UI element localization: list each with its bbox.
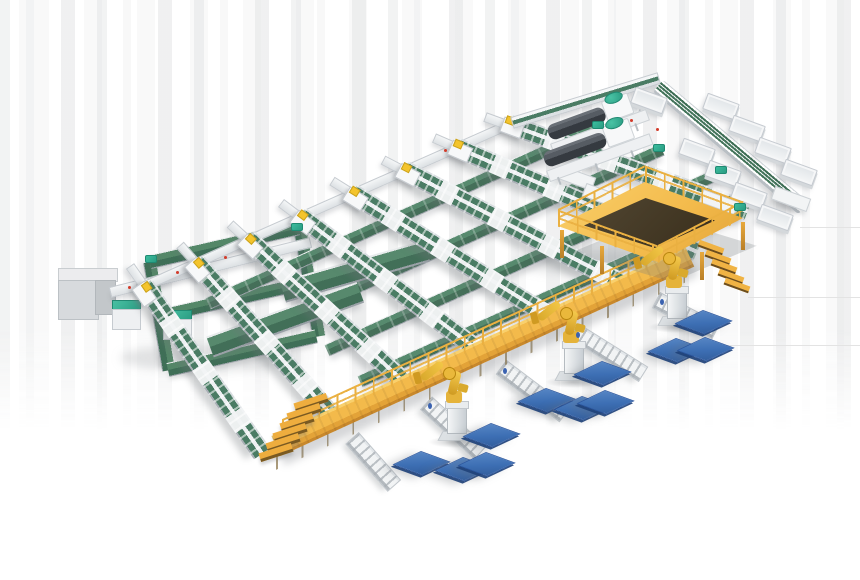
walkway-stairs bbox=[258, 398, 332, 466]
robot-elbow bbox=[560, 307, 573, 320]
red-marker bbox=[656, 128, 659, 131]
teal-accent-cap bbox=[653, 144, 665, 152]
gray-cabinet-front bbox=[58, 280, 99, 320]
blue-marker bbox=[576, 332, 580, 338]
teal-cabinet-front bbox=[112, 309, 141, 330]
blue-marker bbox=[428, 403, 432, 409]
factory-render bbox=[0, 0, 860, 580]
teal-cabinet bbox=[112, 300, 139, 329]
platform-leg bbox=[560, 230, 564, 258]
scene-layer bbox=[0, 0, 860, 580]
red-marker bbox=[224, 256, 227, 259]
teal-accent-cap bbox=[715, 166, 727, 174]
platform-leg bbox=[600, 246, 604, 274]
robot-pedestal bbox=[447, 406, 467, 434]
blue-marker bbox=[660, 299, 664, 305]
blue-marker bbox=[503, 368, 507, 374]
red-marker bbox=[176, 271, 179, 274]
platform-leg bbox=[741, 222, 745, 250]
teal-accent-cap bbox=[734, 203, 746, 211]
roller-spur-conveyor bbox=[345, 432, 401, 492]
robot-pedestal bbox=[667, 291, 687, 319]
red-marker bbox=[444, 149, 447, 152]
gray-cabinet bbox=[58, 268, 116, 318]
teal-accent-cap bbox=[592, 121, 604, 129]
artifact-line bbox=[748, 297, 860, 298]
teal-accent-cap bbox=[145, 255, 157, 263]
red-marker bbox=[630, 119, 633, 122]
robot-elbow bbox=[443, 367, 456, 380]
red-marker bbox=[128, 286, 131, 289]
robot-elbow bbox=[663, 252, 676, 265]
teal-accent-cap bbox=[291, 223, 303, 231]
artifact-line bbox=[800, 227, 860, 228]
